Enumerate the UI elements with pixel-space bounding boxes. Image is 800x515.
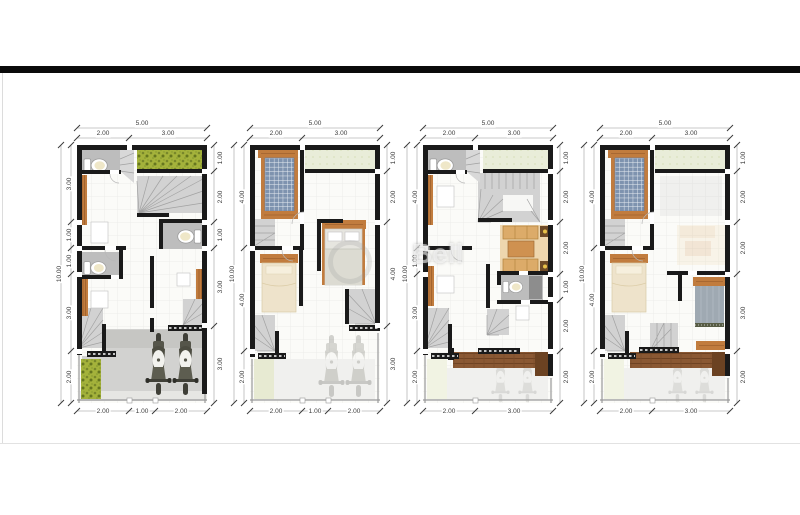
dim-label: 2.00	[741, 190, 748, 205]
dim-label: 3.00	[684, 131, 699, 138]
dim-label: 1.00	[67, 228, 74, 243]
hedge-ghost	[427, 359, 447, 399]
dim-label: 2.00	[741, 241, 748, 256]
floor-plan-1: 5.00 2.00 3.00 2.00 1.00 2.00 10.00 3.00…	[53, 119, 231, 429]
dim-label: 2.00	[96, 131, 111, 138]
dim-label: 3.00	[507, 131, 522, 138]
dim-label: 1.00	[308, 409, 323, 416]
dim-label: 10.00	[230, 265, 237, 283]
dim-label: 3.00	[391, 357, 398, 372]
table	[91, 222, 108, 243]
floor-plan-3: 5.00 2.00 3.00 2.00 3.00 10.00 4.00 1.00…	[399, 119, 577, 429]
table	[437, 276, 454, 293]
floor-plan-1-drawing	[53, 119, 231, 429]
dim-label: 3.00	[741, 306, 748, 321]
dim-label: 2.00	[218, 190, 225, 205]
dim-label: 3.00	[161, 131, 176, 138]
table	[91, 291, 108, 308]
stairs-lower-right	[183, 299, 203, 325]
dim-label: 3.00	[413, 306, 420, 321]
balcony	[305, 147, 376, 169]
stairs-lower-left	[425, 308, 449, 348]
dim-label: 2.00	[413, 370, 420, 385]
dim-label: 1.00	[391, 151, 398, 166]
dim-label: 3.00	[684, 409, 699, 416]
balcony	[655, 147, 726, 169]
dim-label: 2.00	[619, 131, 634, 138]
stairs-center	[650, 323, 678, 351]
bathroom-mid	[501, 275, 543, 300]
dim-label: 4.00	[590, 293, 597, 308]
hedge-ghost	[254, 359, 274, 399]
dim-label: 2.00	[619, 409, 634, 416]
dim-label: 10.00	[57, 265, 64, 283]
dim-label: 3.00	[67, 306, 74, 321]
toilet-icon	[178, 230, 201, 243]
dim-label: 4.00	[240, 293, 247, 308]
sink	[177, 273, 190, 286]
floor-plan-4-drawing	[576, 119, 754, 429]
bed-master	[608, 149, 648, 219]
dim-label: 2.00	[67, 370, 74, 385]
floorplan-sheet: 5.00 2.00 3.00 2.00 1.00 2.00 10.00 3.00…	[0, 0, 800, 515]
bed-kids	[260, 254, 298, 312]
dim-label: 2.00	[564, 319, 571, 334]
dim-label: 3.00	[507, 409, 522, 416]
dim-label: 2.00	[564, 370, 571, 385]
dim-label: 5.00	[308, 121, 323, 128]
dim-label: 5.00	[658, 121, 673, 128]
dim-label: 5.00	[481, 121, 496, 128]
floor-plan-2: 5.00 2.00 3.00 2.00 1.00 2.00 10.00 4.00…	[226, 119, 404, 429]
dim-label: 2.00	[564, 190, 571, 205]
dim-label: 10.00	[580, 265, 587, 283]
stairs-right	[349, 289, 376, 324]
hedge-ghost	[604, 359, 624, 399]
dim-label: 2.00	[564, 241, 571, 256]
dim-label: 2.00	[240, 370, 247, 385]
hedge-top	[137, 147, 203, 170]
dim-label: 1.00	[741, 151, 748, 166]
dim-label: 4.00	[240, 190, 247, 205]
sheet-left-edge	[2, 73, 3, 443]
dim-label: 1.00	[564, 280, 571, 295]
hedge-bottom	[81, 359, 101, 399]
dim-label: 3.00	[218, 357, 225, 372]
floor-plan-4: 5.00 2.00 3.00 2.00 3.00 10.00 4.00 4.00…	[576, 119, 754, 429]
dim-label: 2.00	[96, 409, 111, 416]
dim-label: 3.00	[334, 131, 349, 138]
dim-label: 2.00	[347, 409, 362, 416]
table	[437, 186, 454, 207]
dim-label: 3.00	[218, 280, 225, 295]
sheet-bottom-edge	[0, 443, 800, 444]
dim-label: 1.00	[564, 151, 571, 166]
bed-master	[258, 149, 298, 219]
dim-label: 2.00	[269, 409, 284, 416]
dim-label: 4.00	[590, 190, 597, 205]
dim-label: 2.00	[269, 131, 284, 138]
bed-kids	[610, 254, 648, 312]
dim-label: 1.00	[218, 228, 225, 243]
dim-label: 2.00	[590, 370, 597, 385]
dim-label: 5.00	[135, 121, 150, 128]
dim-label: 2.00	[442, 409, 457, 416]
dim-label: 1.00	[413, 254, 420, 269]
dim-label: 10.00	[403, 265, 410, 283]
dim-label: 2.00	[391, 190, 398, 205]
dim-label: 1.00	[218, 151, 225, 166]
balcony	[483, 147, 549, 169]
dim-label: 2.00	[442, 131, 457, 138]
bed-guest	[322, 220, 366, 285]
dim-label: 4.00	[391, 267, 398, 282]
dim-label: 4.00	[413, 190, 420, 205]
floor-plan-3-drawing	[399, 119, 577, 429]
dim-label: 1.00	[67, 254, 74, 269]
sink	[516, 306, 529, 320]
stairs-center	[487, 309, 509, 335]
dim-label: 3.00	[67, 177, 74, 192]
dim-label: 2.00	[174, 409, 189, 416]
toilet-icon	[84, 262, 106, 275]
dim-label: 1.00	[135, 409, 150, 416]
dim-label: 2.00	[741, 370, 748, 385]
top-bar	[0, 66, 800, 73]
sofa-set	[500, 225, 550, 272]
floor-plan-2-drawing	[226, 119, 404, 429]
